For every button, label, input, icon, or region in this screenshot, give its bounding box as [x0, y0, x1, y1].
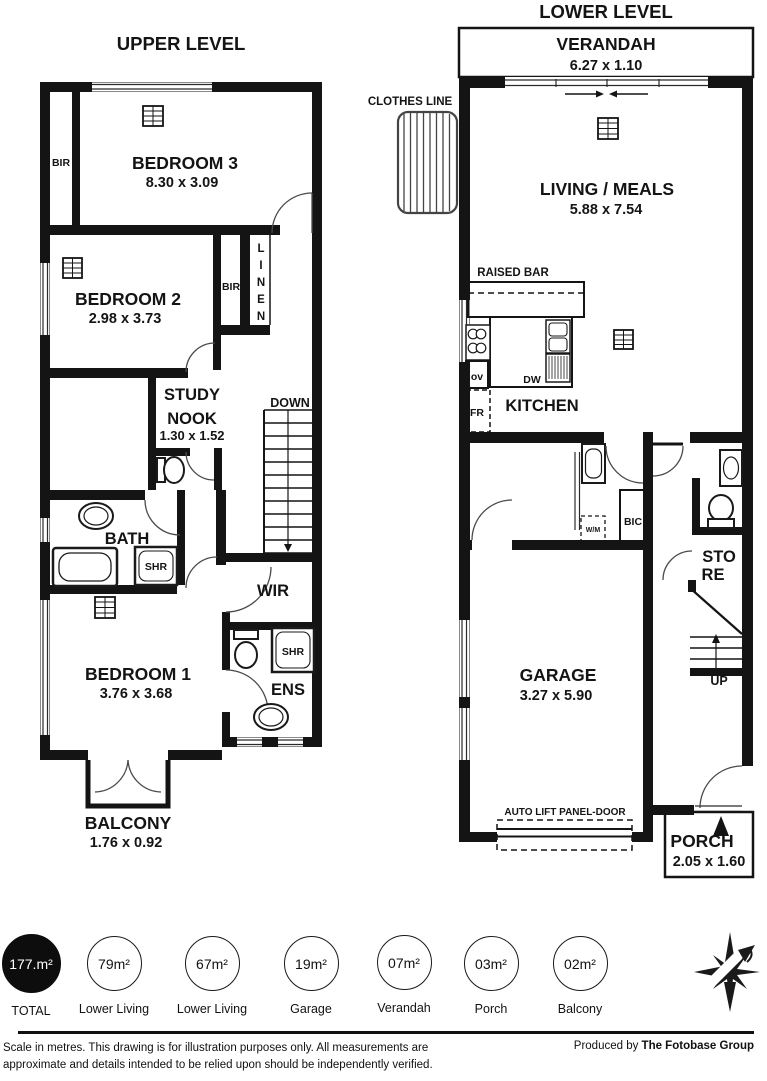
window-bed3-top — [92, 83, 212, 92]
up-label: UP — [710, 674, 727, 688]
stairs-down-arrow — [284, 544, 292, 552]
window-ens-bottom-2 — [278, 738, 303, 747]
balcony-outline — [88, 760, 168, 806]
door-arc-wc — [186, 452, 214, 480]
fridge-label: FR — [470, 407, 484, 419]
bathtub-icon — [53, 548, 117, 586]
stairs-up — [690, 588, 742, 668]
door-arc-front-entry — [700, 766, 742, 808]
stairs-up-arrow — [712, 634, 720, 643]
door-arc-powder — [653, 446, 683, 476]
disclaimer-text: Scale in metres. This drawing is for ill… — [3, 1040, 433, 1074]
shr-ens-label: SHR — [282, 646, 305, 658]
window-garage-left-1 — [460, 620, 470, 697]
legend-total-value: 177.m² — [9, 956, 53, 972]
balcony-label: BALCONY — [85, 813, 172, 833]
oven-label: ov — [471, 371, 483, 383]
lower-fixtures-misc — [598, 118, 633, 349]
window-bed2-left — [41, 263, 50, 335]
lower-level-title: LOWER LEVEL — [539, 1, 673, 22]
garage-door — [497, 820, 632, 850]
cooktop-icon — [466, 325, 490, 360]
legend-total-circle: 177.m² — [2, 934, 61, 993]
lower-door-arcs — [472, 444, 742, 808]
toilet-icon-ens — [234, 630, 258, 668]
verandah-sliding-doors — [505, 77, 708, 98]
garage-label: GARAGE — [520, 665, 597, 685]
study-nook-label-2: NOOK — [167, 410, 217, 428]
balcony-french-door-right — [128, 760, 161, 792]
garage-dims: 3.27 x 5.90 — [520, 688, 593, 704]
stairs-down — [264, 410, 312, 553]
basin-icon-powder — [720, 450, 742, 486]
slider-arrow-left — [609, 91, 617, 98]
study-nook-label-1: STUDY — [164, 386, 220, 404]
bedroom3-dims: 8.30 x 3.09 — [146, 175, 219, 191]
ens-label: ENS — [271, 681, 305, 699]
store-label-2: RE — [702, 566, 725, 584]
upper-level-title: UPPER LEVEL — [117, 33, 246, 54]
laundry-trough-icon — [582, 444, 605, 483]
window-ens-bottom-1 — [237, 738, 262, 747]
raised-bar-label: RAISED BAR — [477, 267, 549, 279]
lower-level-plan: LOWER LEVEL — [368, 1, 753, 877]
living-meals-label: LIVING / MEALS — [540, 179, 674, 199]
window-bath-left — [41, 518, 50, 542]
ceiling-fan-icon-living — [598, 118, 618, 139]
door-arc-bedroom2 — [186, 343, 215, 372]
linen-label: LINEN — [257, 243, 265, 323]
porch-label: PORCH — [670, 831, 733, 851]
floorplan-page: { "upper_level": { "title": "UPPER LEVEL… — [0, 0, 767, 1081]
ceiling-fan-icon-bed2 — [63, 258, 82, 278]
window-garage-left-2 — [460, 708, 470, 760]
bic-label: BIC — [624, 516, 643, 528]
wir-label: WIR — [257, 582, 289, 600]
bedroom1-dims: 3.76 x 3.68 — [100, 686, 173, 702]
verandah-dims: 6.27 x 1.10 — [570, 58, 643, 74]
door-arc-garage — [472, 500, 512, 540]
clothes-line-icon — [398, 112, 457, 213]
shr-bath-label: SHR — [145, 561, 168, 573]
slider-arrow-right — [596, 91, 604, 98]
bir-bed3-label: BIR — [52, 157, 71, 169]
compass-rose-icon — [680, 930, 767, 1020]
toilet-icon-powder — [708, 495, 734, 528]
upper-level-plan: UPPER LEVEL — [40, 33, 322, 851]
ceiling-fan-icon-bed3 — [143, 106, 163, 126]
powder-room-fittings — [708, 450, 742, 528]
producer-name: The Fotobase Group — [642, 1040, 754, 1052]
bedroom3-label: BEDROOM 3 — [132, 153, 238, 173]
door-arc-store — [663, 551, 692, 580]
cavity-slider — [575, 452, 580, 530]
balcony-french-door-left — [95, 760, 128, 792]
porch-dims: 2.05 x 1.60 — [673, 854, 746, 870]
door-arc-laundry — [606, 446, 643, 483]
floorplan-drawing: UPPER LEVEL — [0, 0, 767, 905]
sink-icon-bath — [79, 503, 113, 529]
bedroom2-dims: 2.98 x 3.73 — [89, 311, 162, 327]
kitchen-sink-icon — [546, 320, 570, 353]
washing-machine-label: W/M — [586, 527, 601, 534]
door-arc-bath — [145, 500, 180, 535]
ceiling-fan-icon-bed1 — [95, 597, 115, 618]
door-arc-bedroom1 — [186, 557, 217, 588]
verandah-label: VERANDAH — [556, 34, 655, 54]
bath-label: BATH — [105, 530, 150, 548]
down-label: DOWN — [270, 396, 310, 410]
study-nook-dims: 1.30 x 1.52 — [159, 428, 224, 443]
store-label-1: STO — [702, 548, 736, 566]
living-meals-dims: 5.88 x 7.54 — [570, 202, 643, 218]
balcony-dims: 1.76 x 0.92 — [90, 835, 163, 851]
clothes-line-label: CLOTHES LINE — [368, 96, 453, 108]
window-bed1-left — [41, 600, 50, 735]
footer-divider — [18, 1031, 754, 1034]
sink-icon-ens — [254, 704, 288, 730]
dishwasher-icon — [546, 354, 570, 382]
toilet-icon-wc — [157, 457, 184, 483]
bedroom2-label: BEDROOM 2 — [75, 289, 181, 309]
ceiling-fan-icon-meals — [614, 330, 633, 349]
kitchen-label: KITCHEN — [505, 397, 578, 415]
producer-credit: Produced by The Fotobase Group — [574, 1040, 754, 1052]
legend-balcony: 02m² Balcony — [520, 936, 640, 1016]
auto-lift-door-label: AUTO LIFT PANEL-DOOR — [504, 807, 626, 818]
bir-bed2-label: BIR — [222, 281, 241, 293]
bedroom1-label: BEDROOM 1 — [85, 664, 191, 684]
dishwasher-label: DW — [523, 374, 541, 386]
